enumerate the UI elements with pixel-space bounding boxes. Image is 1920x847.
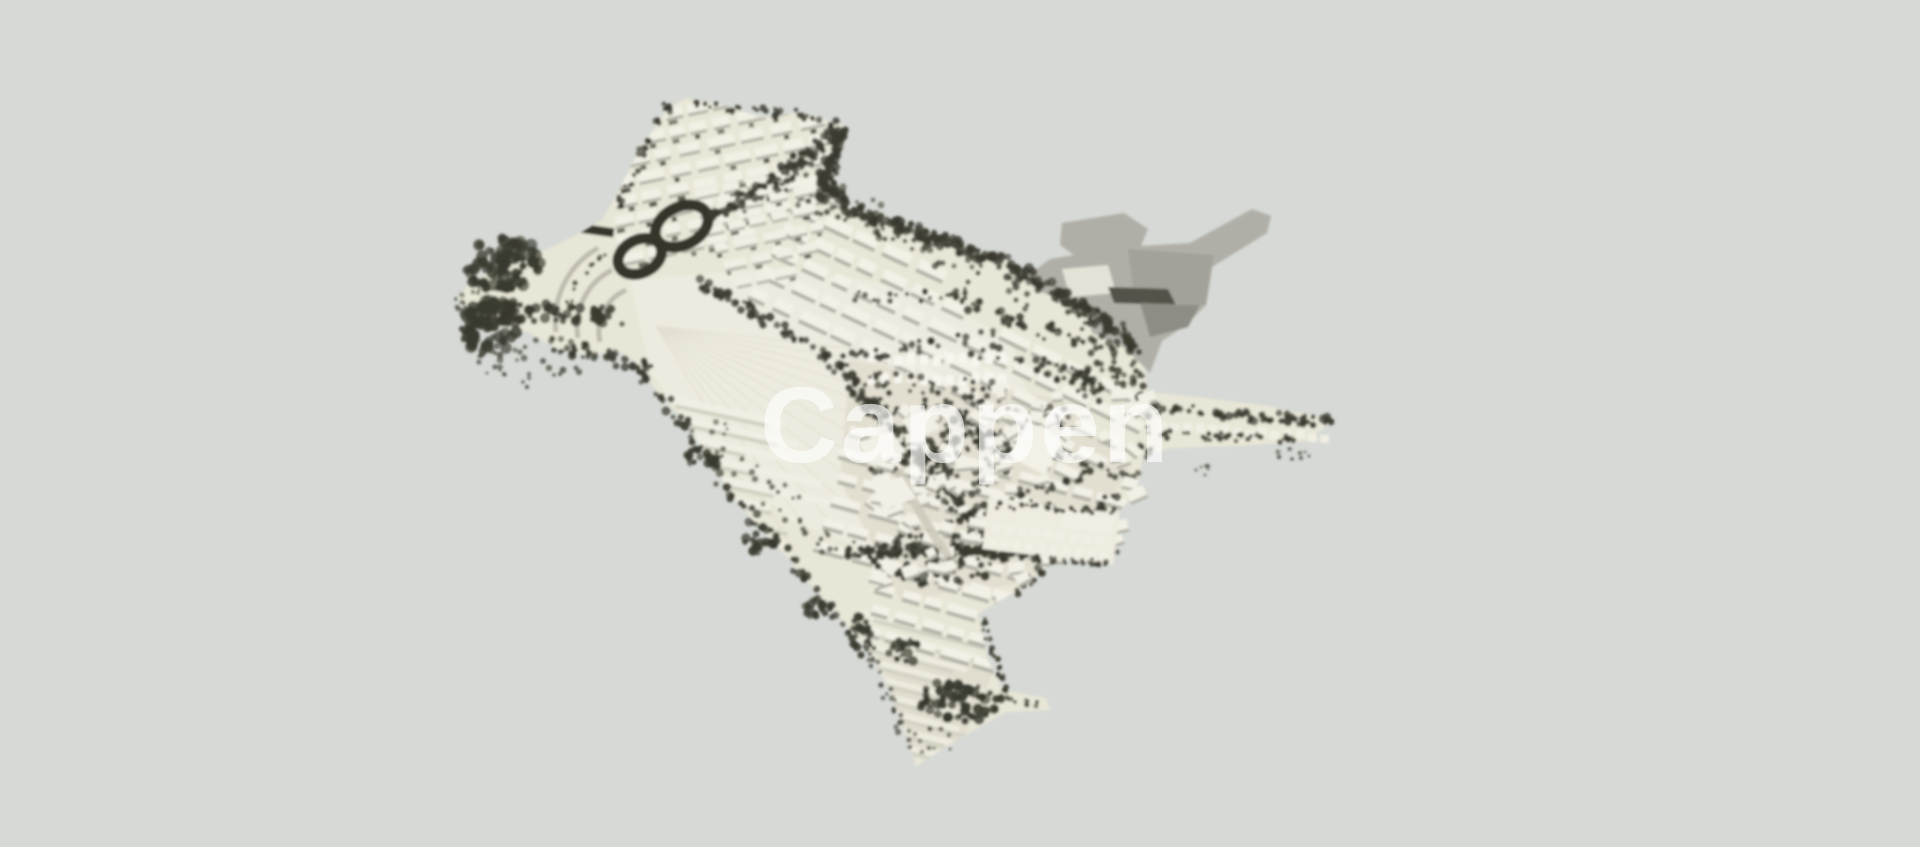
svg-text:Cappen: Cappen: [760, 364, 1171, 485]
